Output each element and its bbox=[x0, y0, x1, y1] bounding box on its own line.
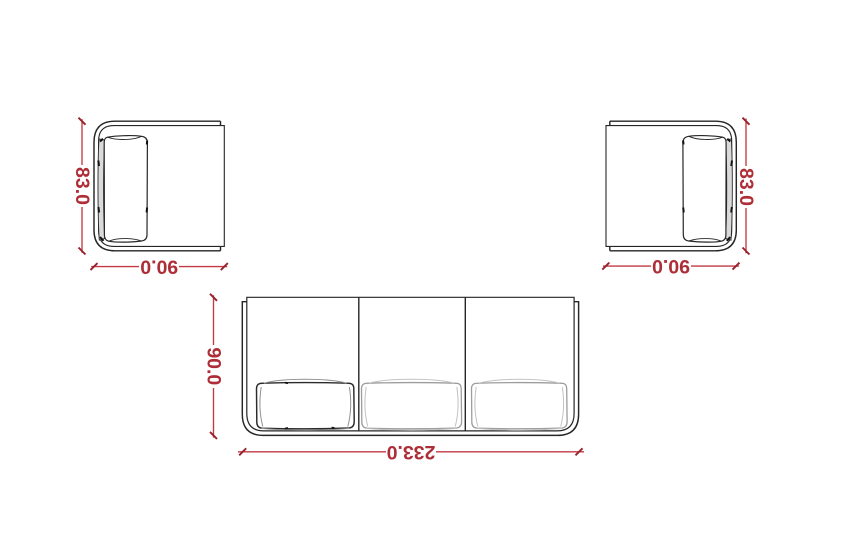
svg-text:90.0: 90.0 bbox=[140, 256, 178, 278]
svg-text:83.0: 83.0 bbox=[735, 168, 757, 206]
svg-text:233.0: 233.0 bbox=[386, 441, 435, 463]
svg-text:90.0: 90.0 bbox=[203, 347, 225, 385]
svg-text:83.0: 83.0 bbox=[71, 167, 93, 205]
svg-text:90.0: 90.0 bbox=[652, 255, 690, 277]
